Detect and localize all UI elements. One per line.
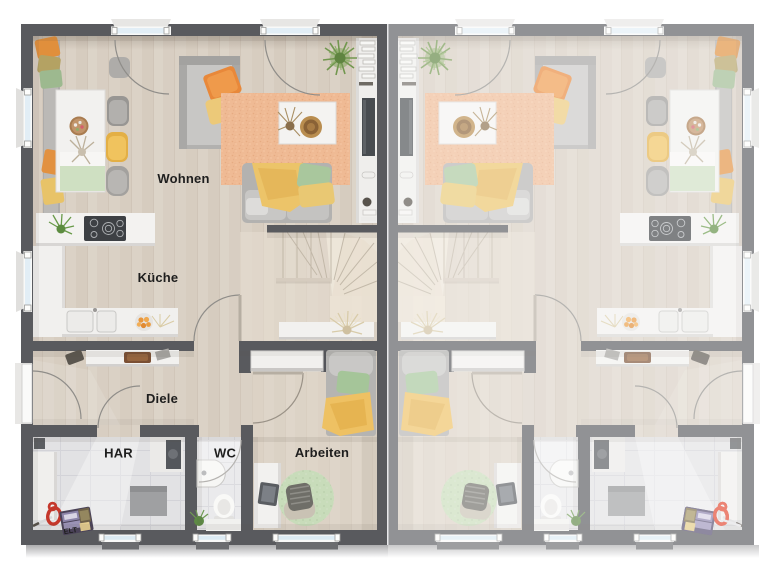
svg-text:Arbeiten: Arbeiten xyxy=(295,445,349,460)
svg-text:HAR: HAR xyxy=(104,446,133,461)
svg-text:Küche: Küche xyxy=(138,270,179,285)
svg-text:WC: WC xyxy=(214,446,236,461)
svg-text:Wohnen: Wohnen xyxy=(157,171,209,186)
svg-text:Diele: Diele xyxy=(146,391,178,406)
